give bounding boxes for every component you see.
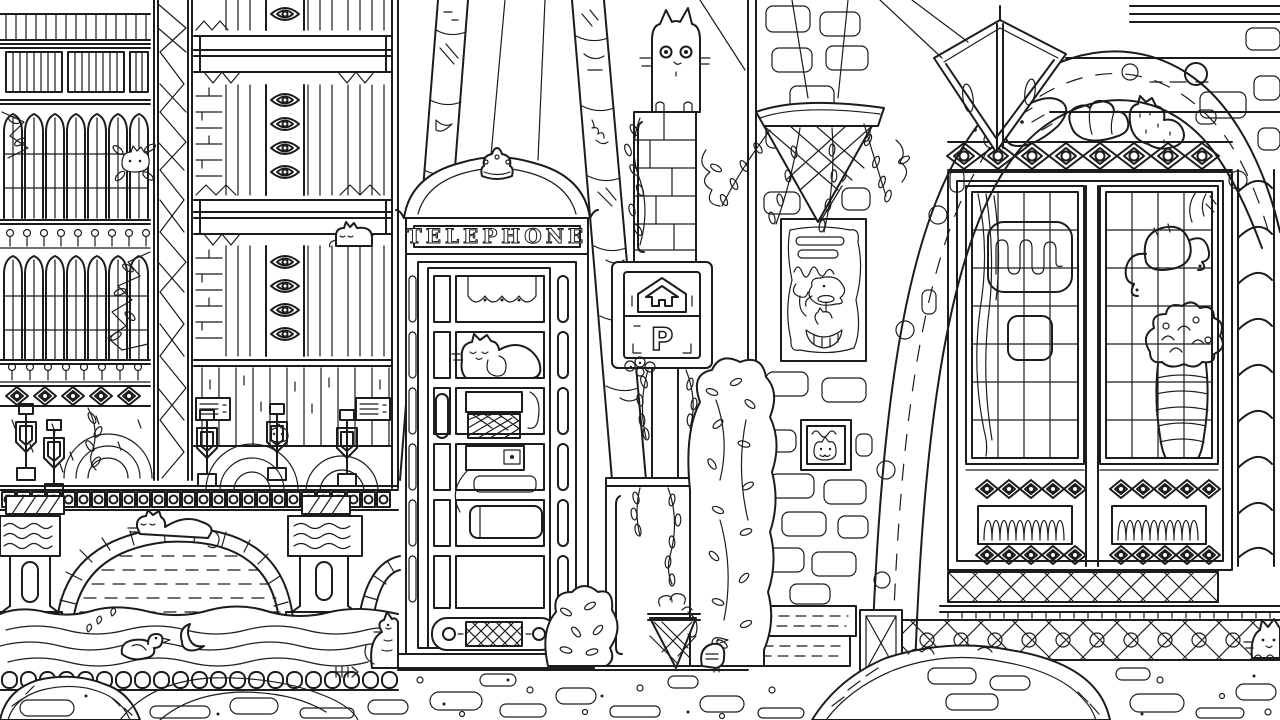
parking-letter: P: [651, 322, 674, 358]
coloring-page-illustration: P TELEPHONE: [0, 0, 1280, 720]
diamond-frieze: [947, 142, 1232, 170]
sign-post: [652, 368, 678, 478]
shop-windows: [948, 172, 1232, 570]
pretzel-sign: [988, 222, 1072, 292]
roofline: [1130, 6, 1280, 22]
stone-column: [623, 112, 696, 264]
left-tower-facade: [0, 14, 152, 496]
wall-poster: [781, 219, 866, 361]
booth-sign: TELEPHONE: [406, 218, 588, 254]
under-window-panels: [966, 470, 1220, 564]
beam-cat: [330, 222, 372, 247]
crystal-pillar: [154, 0, 192, 480]
mound-right: [812, 646, 1110, 720]
standing-cat: [640, 8, 710, 112]
cat-relief-carving: [801, 420, 851, 470]
bush-small: [545, 586, 617, 666]
bakery-building: [870, 6, 1280, 700]
bush-large: [688, 358, 776, 666]
under-frame-lattice: [940, 572, 1280, 618]
parking-sign: P: [612, 262, 712, 368]
left-apartment-building: [0, 0, 398, 510]
right-edge-cat: [1244, 619, 1280, 658]
hanging-flower-basket: [702, 0, 911, 232]
telephone-sign-text: TELEPHONE: [407, 224, 587, 248]
crown-emblem: [481, 148, 512, 179]
window-card: [1008, 316, 1052, 360]
telephone-box: TELEPHONE: [396, 148, 598, 668]
leaf-strands: [636, 370, 698, 440]
coloring-page: P TELEPHONE: [0, 0, 1280, 720]
rope-column: [1238, 170, 1274, 566]
booth-plaque: [432, 618, 556, 650]
window-croissant: [1126, 224, 1209, 296]
bakery-breads: [1005, 96, 1184, 149]
diamond-lantern: [934, 6, 1066, 152]
